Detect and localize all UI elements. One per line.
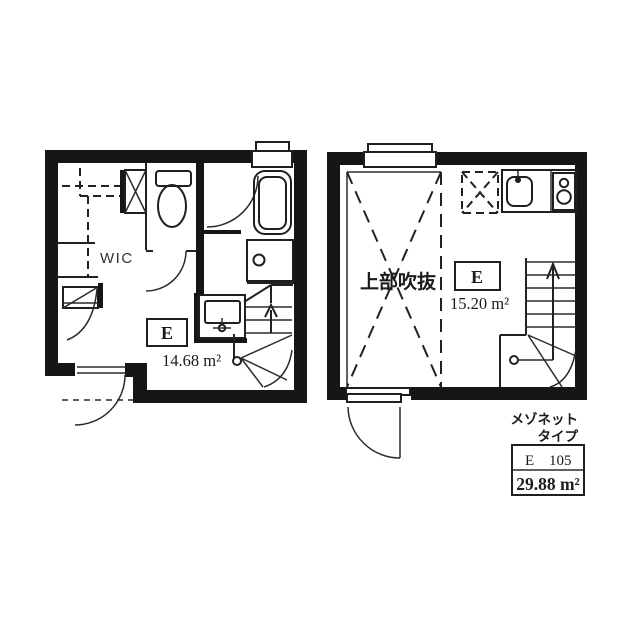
caption: メゾネット タイプ [511, 412, 579, 444]
kitchen-counter [502, 170, 576, 212]
floor-plan-right: 上部吹抜 [327, 144, 587, 458]
bath-door-arc [207, 176, 258, 227]
caption-line2: タイプ [538, 429, 579, 444]
toilet-door-arc [146, 251, 186, 291]
balcony-door [346, 388, 410, 458]
unit-info-table: E 105 29.88 m² [512, 445, 584, 495]
right-room-area: 15.20 m² [450, 294, 509, 313]
floorplan-page: WIC [0, 0, 640, 640]
toilet-room [146, 163, 204, 294]
floorplan-drawing: WIC [0, 0, 640, 640]
wic-label: WIC [100, 250, 134, 267]
stair-newel-dot [510, 356, 518, 364]
floor-plan-left: WIC [45, 142, 307, 425]
void-label: 上部吹抜 [360, 270, 437, 293]
stove-burners [553, 173, 575, 210]
sink-unit [194, 293, 247, 343]
staircase-left [233, 285, 293, 387]
unit-letter: E [525, 453, 534, 469]
unit-number: 105 [549, 453, 572, 469]
stair-up-arrow-right [547, 264, 559, 360]
shoe-closet [63, 283, 103, 340]
bath-room [204, 171, 291, 234]
washroom-vanity [247, 240, 294, 283]
faucet-icon [213, 318, 231, 331]
left-room-label: E 14.68 m² [147, 319, 221, 370]
stair-up-arrow-left [265, 305, 277, 333]
faucet-icon [515, 177, 521, 183]
window-top [364, 144, 436, 167]
kitchen-sink [507, 171, 532, 206]
duct-box [252, 142, 292, 167]
right-room-label: E 15.20 m² [450, 262, 509, 313]
left-room-letter: E [161, 323, 173, 343]
unit-total-area: 29.88 m² [516, 474, 580, 494]
pipe-space-box [120, 170, 146, 213]
right-room-letter: E [471, 267, 483, 287]
stair-newel-dot [233, 357, 241, 365]
wic-room: WIC [58, 163, 146, 278]
bathtub [254, 171, 291, 234]
toilet-fixture [156, 171, 191, 227]
void-area: 上部吹抜 [347, 172, 441, 387]
caption-line1: メゾネット [511, 412, 579, 427]
fridge-space [462, 172, 498, 213]
staircase-right [500, 258, 576, 387]
left-room-area: 14.68 m² [162, 351, 221, 370]
